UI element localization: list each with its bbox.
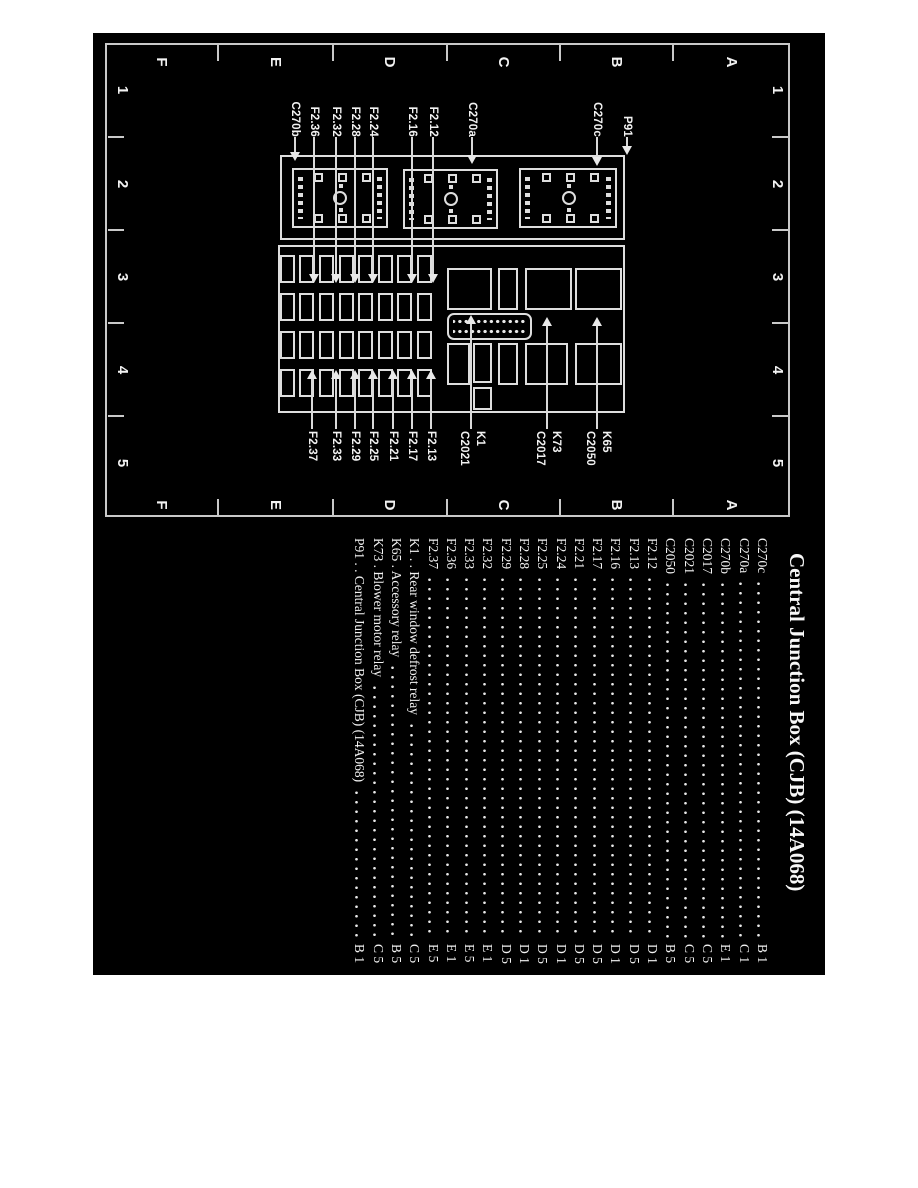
legend-item-ref: E 1 (717, 944, 733, 968)
legend-row: C270cB 1 (753, 538, 771, 968)
legend-item-ref: B 1 (754, 944, 770, 968)
pin-square (448, 215, 457, 224)
legend-item-label: F2.32 (479, 538, 495, 569)
callout-label-f2-28: F2.28 (348, 85, 362, 137)
dotted-leader (465, 575, 468, 938)
connector-bolt-circle (562, 191, 576, 205)
grid-letter: B (608, 495, 624, 515)
callout-label-f2-36: F2.36 (307, 85, 321, 137)
legend-row: F2.29D 5 (497, 538, 515, 968)
dotted-leader (538, 575, 541, 938)
callout-label-f2-12: F2.12 (426, 85, 440, 137)
pin-square (542, 214, 551, 223)
legend-item-label: F2.12 (644, 538, 660, 569)
grid-letter: A (723, 495, 739, 515)
grid-letter: D (381, 52, 397, 72)
grid-tick (332, 499, 334, 515)
legend-item-label: F2.29 (498, 538, 514, 569)
arrowhead-icon (368, 370, 378, 379)
legend-item-label: F2.17 (589, 538, 605, 569)
arrowhead-icon (407, 274, 417, 283)
legend-item-label: C2021 (681, 538, 697, 574)
connector-id: C2021 (456, 431, 472, 466)
callout-label-f2-13: F2.13 (424, 431, 438, 461)
legend-item-label: F2.33 (461, 538, 477, 569)
legend-item-ref: C 1 (736, 944, 752, 968)
fuse (319, 331, 334, 359)
dotted-leader (757, 579, 760, 938)
legend-item-ref: C 5 (406, 944, 422, 968)
legend-item-ref: C 5 (370, 944, 386, 968)
pin-square (542, 173, 551, 182)
relay-box (473, 343, 492, 383)
legend-item-label: F2.36 (443, 538, 459, 569)
grid-tick (772, 229, 788, 231)
grid-tick (108, 229, 124, 231)
arrowhead-icon (388, 370, 398, 379)
grid-tick (672, 499, 674, 515)
grid-tick (108, 322, 124, 324)
legend-item-label: F2.28 (516, 538, 532, 569)
pin-row (525, 177, 530, 219)
fuse (397, 331, 412, 359)
pin-square (362, 173, 371, 182)
dotted-leader (556, 575, 559, 938)
legend-row: F2.28D 1 (515, 538, 533, 968)
legend-item-label: K1 . . Rear window defrost relay (406, 538, 422, 715)
grid-tick (772, 136, 788, 138)
connector-c270c (519, 168, 617, 228)
legend-item-label: C2017 (699, 538, 715, 574)
legend-row: F2.21D 5 (570, 538, 588, 968)
callout-label-k1-c2021: K1 C2021 (456, 431, 487, 466)
callout-label-f2-33: F2.33 (329, 431, 343, 461)
legend-row: F2.25D 5 (533, 538, 551, 968)
dotted-leader (684, 580, 687, 938)
dotted-leader (483, 575, 486, 938)
dotted-leader (446, 575, 449, 938)
dotted-leader (611, 575, 614, 938)
leader-line (294, 137, 296, 152)
pin-square (472, 215, 481, 224)
legend-item-ref: E 5 (461, 944, 477, 968)
callout-label-p91: P91 (620, 85, 634, 137)
arrowhead-icon (290, 152, 300, 161)
pin-dot (339, 184, 343, 188)
pin-square (362, 214, 371, 223)
pin-square (314, 214, 323, 223)
dotted-leader (629, 575, 632, 938)
legend-item-label: F2.21 (571, 538, 587, 569)
grid-letter: E (267, 495, 283, 515)
pin-square (338, 214, 347, 223)
relay-k65 (575, 268, 622, 310)
arrowhead-icon (350, 274, 360, 283)
grid-number: 2 (769, 174, 785, 194)
relay-box (498, 343, 518, 385)
grid-tick (332, 45, 334, 61)
leader-line (372, 137, 374, 274)
grid-letter: D (381, 495, 397, 515)
arrowhead-icon (466, 315, 476, 324)
grid-tick (672, 45, 674, 61)
leader-line (372, 379, 374, 429)
leader-line (430, 379, 432, 429)
legend-item-ref: D 5 (571, 944, 587, 968)
legend-row: F2.36E 1 (442, 538, 460, 968)
grid-letter: A (723, 52, 739, 72)
grid-tick (446, 45, 448, 61)
grid-tick (559, 499, 561, 515)
legend-row: C2021C 5 (680, 538, 698, 968)
legend-row: K65 . Accessory relayB 5 (387, 538, 405, 968)
fuse (358, 331, 373, 359)
fuse (417, 293, 432, 321)
fuse (280, 255, 295, 283)
legend-row: C2050B 5 (661, 538, 679, 968)
pin-square (590, 173, 599, 182)
legend-item-ref: E 1 (443, 944, 459, 968)
grid-tick (217, 45, 219, 61)
legend-item-label: K65 . Accessory relay (388, 538, 404, 657)
pin-dot (567, 208, 571, 212)
arrowhead-icon (542, 317, 552, 326)
grid-number: 3 (114, 267, 130, 287)
pin-row (377, 177, 382, 219)
grid-number: 2 (114, 174, 130, 194)
leader-line (546, 326, 548, 429)
pin-square (566, 214, 575, 223)
legend-item-ref: D 1 (607, 944, 623, 968)
legend-item-ref: D 5 (534, 944, 550, 968)
dotted-leader (391, 663, 394, 938)
legend-row: C2017C 5 (698, 538, 716, 968)
pin-dot-column (453, 329, 526, 334)
connector-id: C2017 (532, 431, 548, 466)
fuse (299, 293, 314, 321)
callout-label-c270a: C270a (465, 85, 479, 137)
callout-label-f2-21: F2.21 (386, 431, 400, 461)
pin-dot (449, 209, 453, 213)
grid-letter: F (153, 495, 169, 515)
dotted-leader (666, 580, 669, 938)
leader-line (471, 137, 473, 155)
leader-line (470, 324, 472, 429)
dotted-leader (428, 575, 431, 938)
relay-box (575, 343, 622, 385)
manual-page: 1 2 3 4 5 1 2 3 4 5 A B C D E F A B C D … (0, 0, 918, 1188)
arrowhead-icon (309, 274, 319, 283)
dotted-leader (501, 575, 504, 938)
legend-item-ref: D 5 (626, 944, 642, 968)
fuse (358, 293, 373, 321)
leader-line (596, 326, 598, 429)
leader-line (354, 379, 356, 429)
fuse (339, 293, 354, 321)
fuse (417, 331, 432, 359)
relay-box (498, 268, 518, 310)
grid-number: 4 (114, 360, 130, 380)
fuse (280, 293, 295, 321)
legend-item-ref: D 1 (644, 944, 660, 968)
connector-id: C2050 (582, 431, 598, 466)
pin-row (487, 178, 492, 220)
grid-tick (559, 45, 561, 61)
callout-label-f2-37: F2.37 (305, 431, 319, 461)
leader-line (626, 137, 628, 146)
legend-row: K1 . . Rear window defrost relayC 5 (405, 538, 423, 968)
pin-square (566, 173, 575, 182)
legend-item-ref: D 1 (516, 944, 532, 968)
legend-item-label: C270b (717, 538, 733, 574)
grid-tick (446, 499, 448, 515)
legend-row: F2.37E 5 (423, 538, 441, 968)
grid-tick (217, 499, 219, 515)
legend-item-label: F2.37 (425, 538, 441, 569)
legend-item-label: P91 . . Central Junction Box (CJB) (14A0… (351, 538, 367, 782)
legend-item-ref: B 1 (351, 944, 367, 968)
legend-row: F2.16D 1 (606, 538, 624, 968)
legend-item-ref: C 5 (681, 944, 697, 968)
figure-rotated-landscape: 1 2 3 4 5 1 2 3 4 5 A B C D E F A B C D … (93, 33, 825, 975)
grid-number: 1 (769, 80, 785, 100)
leader-line (313, 137, 315, 274)
relay-box (447, 343, 470, 385)
legend-item-ref: B 5 (662, 944, 678, 968)
callout-label-f2-24: F2.24 (366, 85, 380, 137)
dotted-leader (574, 575, 577, 938)
leader-line (411, 379, 413, 429)
page-title: Central Junction Box (CJB) (14A068) (784, 553, 809, 891)
connector-c270a (403, 169, 498, 229)
dotted-leader (373, 683, 376, 938)
callout-label-f2-17: F2.17 (405, 431, 419, 461)
pin-dot (339, 208, 343, 212)
legend-item-label: C270a (736, 538, 752, 573)
dotted-leader (593, 575, 596, 938)
legend-item-ref: D 5 (498, 944, 514, 968)
leader-line (411, 137, 413, 274)
grid-tick (108, 136, 124, 138)
callout-label-k73-c2017: K73 C2017 (532, 431, 563, 466)
legend-item-label: F2.24 (553, 538, 569, 569)
legend-item-label: F2.13 (626, 538, 642, 569)
fuse (378, 255, 393, 283)
legend-item-ref: C 5 (699, 944, 715, 968)
fuse (280, 331, 295, 359)
leader-line (596, 137, 598, 157)
arrowhead-icon (592, 157, 602, 166)
legend: C270cB 1 C270aC 1 C270bE 1 C2017C 5 C202… (350, 538, 771, 968)
legend-item-ref: E 5 (425, 944, 441, 968)
dotted-leader (410, 721, 413, 938)
legend-row: C270bE 1 (716, 538, 734, 968)
legend-row: F2.13D 5 (625, 538, 643, 968)
leader-line (335, 137, 337, 274)
fuse (319, 293, 334, 321)
pin-row (606, 177, 611, 219)
pin-square (590, 214, 599, 223)
legend-item-label: F2.16 (607, 538, 623, 569)
arrowhead-icon (467, 155, 477, 164)
arrowhead-icon (407, 370, 417, 379)
pin-dot (449, 185, 453, 189)
legend-item-ref: E 1 (479, 944, 495, 968)
dotted-leader (702, 580, 705, 938)
legend-item-label: C270c (754, 538, 770, 573)
arrowhead-icon (350, 370, 360, 379)
fuse (378, 331, 393, 359)
pin-dot-column (453, 319, 526, 324)
leader-line (392, 379, 394, 429)
connector-bolt-circle (444, 192, 458, 206)
grid-letter: C (495, 52, 511, 72)
arrowhead-icon (426, 370, 436, 379)
legend-row: F2.33E 5 (460, 538, 478, 968)
relay-id: K73 (548, 431, 564, 466)
pin-square (314, 173, 323, 182)
leader-line (335, 379, 337, 429)
grid-letter: F (153, 52, 169, 72)
legend-row: F2.32E 1 (478, 538, 496, 968)
arrowhead-icon (622, 146, 632, 155)
legend-item-ref: D 5 (589, 944, 605, 968)
fuse (397, 293, 412, 321)
fuse (378, 293, 393, 321)
fuse (339, 331, 354, 359)
callout-label-f2-29: F2.29 (348, 431, 362, 461)
dotted-leader (648, 575, 651, 938)
relay-id: K1 (472, 431, 488, 466)
legend-item-ref: B 5 (388, 944, 404, 968)
pin-row (298, 177, 303, 219)
grid-letter: E (267, 52, 283, 72)
arrowhead-icon (307, 370, 317, 379)
pin-square (338, 173, 347, 182)
legend-row: C270aC 1 (734, 538, 752, 968)
dotted-leader (739, 579, 742, 938)
leader-line (432, 137, 434, 274)
legend-row: F2.17D 5 (588, 538, 606, 968)
grid-number: 5 (769, 453, 785, 473)
leader-line (354, 137, 356, 274)
legend-row: P91 . . Central Junction Box (CJB) (14A0… (350, 538, 368, 968)
callout-label-c270b: C270b (288, 85, 302, 137)
legend-row: F2.12D 1 (643, 538, 661, 968)
callout-label-c270c: C270c (590, 85, 604, 137)
arrowhead-icon (331, 274, 341, 283)
grid-tick (772, 322, 788, 324)
dotted-leader (355, 788, 358, 938)
relay-id: K65 (598, 431, 614, 466)
fuse (280, 369, 295, 397)
legend-item-ref: D 1 (553, 944, 569, 968)
fuse (299, 331, 314, 359)
pin-square (472, 174, 481, 183)
connector-c2021 (447, 313, 532, 340)
callout-label-k65-c2050: K65 C2050 (582, 431, 613, 466)
leader-line (311, 379, 313, 429)
grid-letter: B (608, 52, 624, 72)
pin-dot (567, 184, 571, 188)
legend-row: F2.24D 1 (551, 538, 569, 968)
dotted-leader (520, 575, 523, 938)
arrowhead-icon (331, 370, 341, 379)
grid-tick (772, 415, 788, 417)
legend-item-label: C2050 (662, 538, 678, 574)
arrowhead-icon (368, 274, 378, 283)
grid-tick (108, 415, 124, 417)
relay-k73 (525, 268, 572, 310)
legend-item-label: F2.25 (534, 538, 550, 569)
grid-number: 4 (769, 360, 785, 380)
grid-number: 3 (769, 267, 785, 287)
legend-row: K73 . Blower motor relayC 5 (368, 538, 386, 968)
grid-number: 5 (114, 453, 130, 473)
callout-label-f2-32: F2.32 (329, 85, 343, 137)
pin-square (448, 174, 457, 183)
relay-k1 (447, 268, 492, 310)
callout-label-f2-25: F2.25 (366, 431, 380, 461)
relay-box (473, 387, 492, 410)
arrowhead-icon (592, 317, 602, 326)
arrowhead-icon (428, 274, 438, 283)
fuse-column (280, 293, 432, 321)
grid-letter: C (495, 495, 511, 515)
callout-label-f2-16: F2.16 (405, 85, 419, 137)
fuse-column (280, 331, 432, 359)
legend-item-label: K73 . Blower motor relay (370, 538, 386, 677)
grid-number: 1 (114, 80, 130, 100)
dotted-leader (721, 580, 724, 938)
